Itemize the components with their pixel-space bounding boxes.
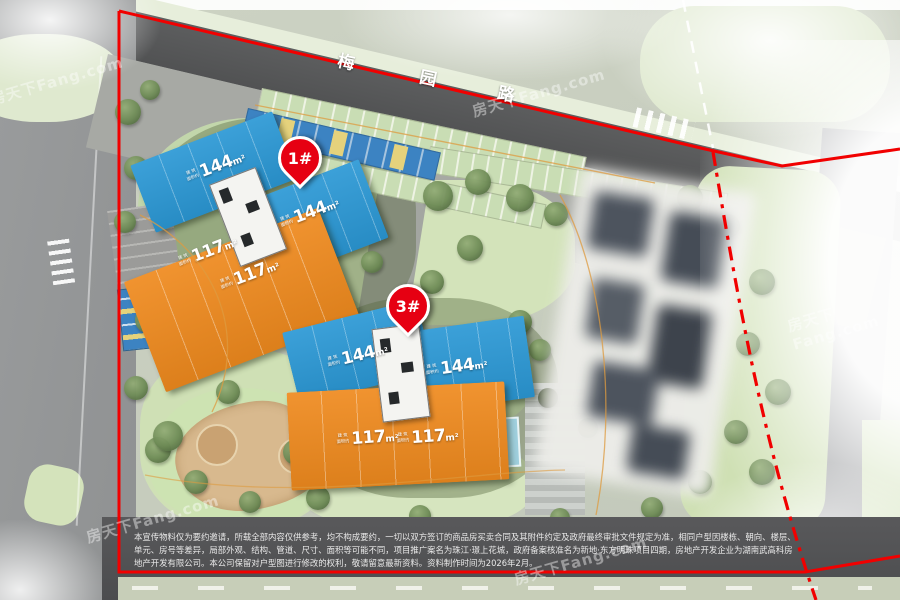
- disclaimer-text: 本宣传物料仅为要约邀请，所载全部内容仅供参考，均不构成要约，一切以双方签订的商品…: [134, 531, 900, 570]
- canopy-cell: [389, 144, 408, 171]
- area-unit: m²: [231, 154, 247, 168]
- tree: [457, 235, 483, 261]
- area-prefix: 建 筑面积约: [395, 432, 411, 445]
- tree: [544, 202, 568, 226]
- tree: [749, 269, 775, 295]
- tree: [239, 491, 261, 513]
- disclaimer-line: 单元、房号等差异，局部外观、结构、管道、尺寸、面积等可能不同，项目推广案名为珠江…: [134, 544, 900, 557]
- blurred-detail: [660, 211, 728, 289]
- area-unit: m²: [325, 200, 341, 214]
- disclaimer-line: 地产开发有限公司。本公司保留对户型图进行修改的权利，敬请留意最新资料。资料制作时…: [134, 557, 900, 570]
- blurred-detail: [586, 191, 654, 258]
- area-value: 117: [351, 427, 386, 449]
- tree: [361, 251, 383, 273]
- blurred-detail: [585, 277, 646, 344]
- area-unit: m²: [374, 346, 389, 359]
- tree: [749, 459, 775, 485]
- playground-ring: [196, 424, 238, 466]
- northeast-lawn: [640, 6, 890, 122]
- south-lane-marks: [132, 586, 872, 590]
- blurred-detail: [586, 361, 660, 427]
- disclaimer-line: 本宣传物料仅为要约邀请，所载全部内容仅供参考，均不构成要约，一切以双方签订的商品…: [134, 531, 900, 544]
- tree: [465, 169, 491, 195]
- area-unit: m²: [265, 262, 281, 276]
- area-prefix: 建 筑面积约: [335, 433, 351, 446]
- area-unit: m²: [445, 433, 459, 444]
- tree: [216, 380, 240, 404]
- site-plan-image: 建 筑面积约 144 m² 建 筑面积约 144 m² 建 筑面积约 117 m…: [0, 0, 900, 600]
- tree: [114, 211, 136, 233]
- tree: [765, 379, 791, 405]
- tree: [115, 99, 141, 125]
- blurred-detail: [626, 423, 691, 479]
- area-unit: m²: [474, 361, 489, 373]
- tree: [724, 420, 748, 444]
- building-1-pin-label: 1#: [281, 139, 319, 177]
- tree: [184, 470, 208, 494]
- tree: [153, 421, 183, 451]
- building-3-pin-label: 3#: [389, 287, 427, 325]
- tree: [641, 497, 663, 519]
- canopy-cell: [329, 130, 348, 157]
- tree: [423, 181, 453, 211]
- tree: [529, 339, 551, 361]
- area-value: 117: [411, 426, 446, 448]
- tree: [124, 376, 148, 400]
- tree: [140, 80, 160, 100]
- tree: [736, 332, 760, 356]
- area-prefix: 建 筑面积约: [325, 354, 342, 369]
- area-unit: m²: [223, 239, 239, 253]
- tree: [506, 184, 534, 212]
- area-prefix: 建 筑面积约: [424, 364, 440, 377]
